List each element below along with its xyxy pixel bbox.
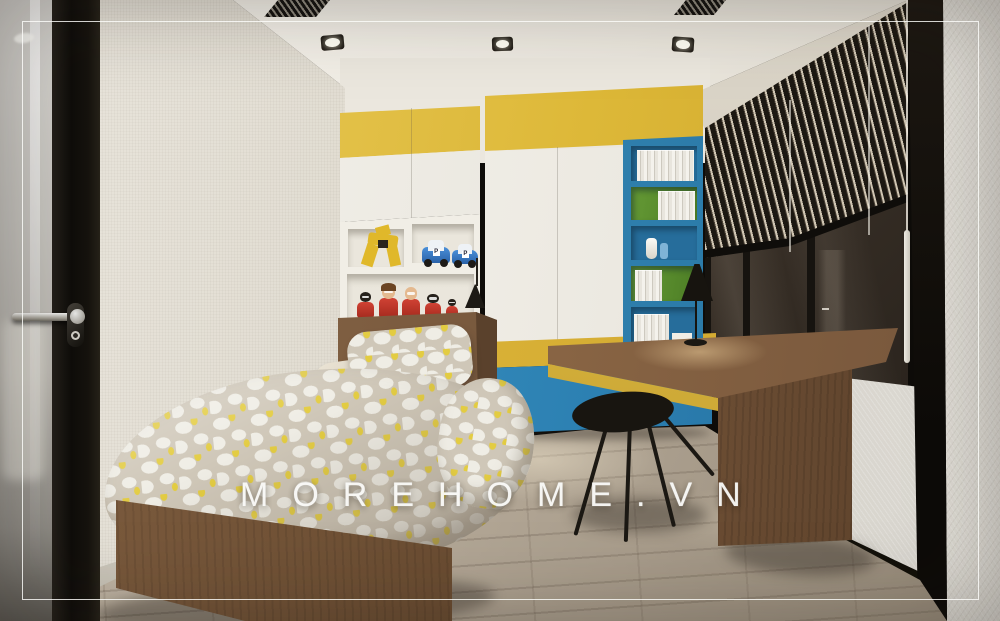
bedroom-render: P P (0, 0, 1000, 621)
white-inner-border (22, 21, 979, 600)
